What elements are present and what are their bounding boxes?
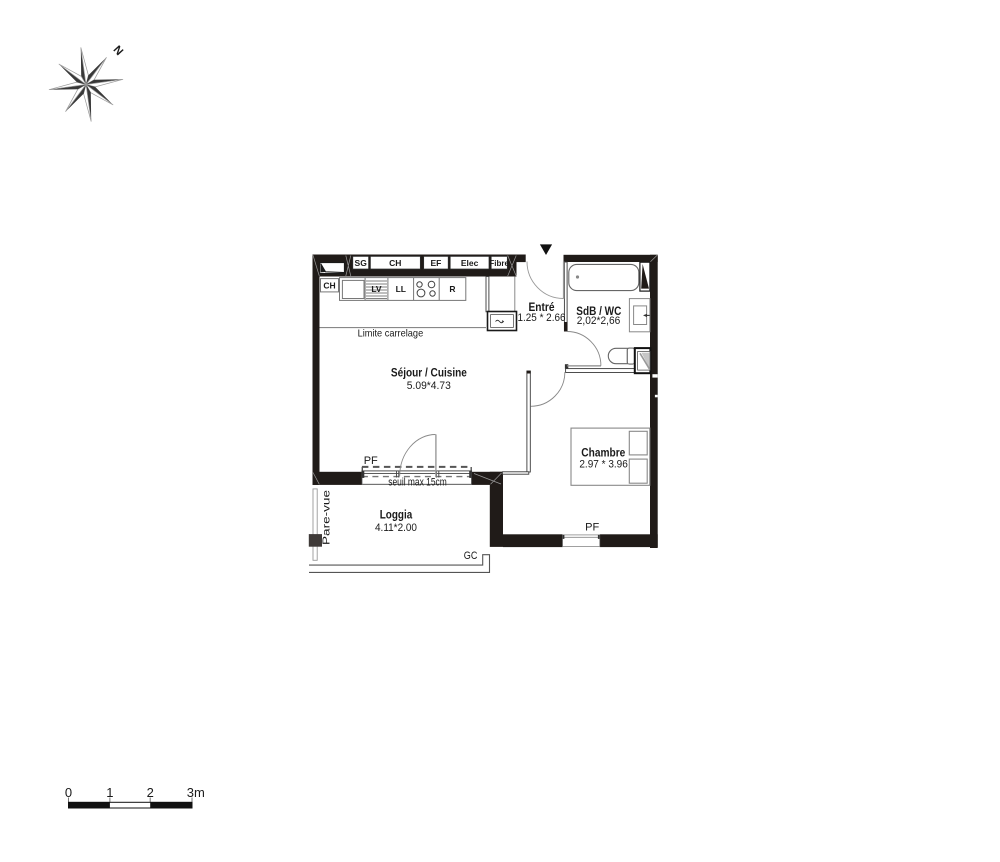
svg-text:Pare-vue: Pare-vue bbox=[321, 489, 332, 545]
svg-text:CH: CH bbox=[323, 280, 335, 290]
svg-text:GC: GC bbox=[464, 550, 478, 562]
svg-text:1.25 * 2.66: 1.25 * 2.66 bbox=[518, 312, 566, 324]
svg-text:5.09*4.73: 5.09*4.73 bbox=[407, 380, 451, 392]
svg-text:2,02*2,66: 2,02*2,66 bbox=[577, 315, 621, 327]
svg-text:0: 0 bbox=[65, 785, 72, 800]
svg-text:Fibre: Fibre bbox=[489, 259, 509, 268]
svg-text:CH: CH bbox=[389, 258, 401, 268]
svg-text:Loggia: Loggia bbox=[380, 510, 413, 522]
svg-text:4.11*2.00: 4.11*2.00 bbox=[375, 522, 417, 534]
svg-text:Limite carrelage: Limite carrelage bbox=[358, 328, 424, 340]
svg-text:2.97 * 3.96: 2.97 * 3.96 bbox=[579, 458, 628, 470]
svg-text:LV: LV bbox=[371, 284, 382, 294]
svg-text:3m: 3m bbox=[187, 785, 205, 800]
svg-text:EF: EF bbox=[430, 258, 441, 268]
svg-text:R: R bbox=[449, 284, 455, 294]
svg-text:PF: PF bbox=[364, 455, 378, 467]
svg-text:PF: PF bbox=[585, 522, 599, 534]
svg-text:SG: SG bbox=[355, 258, 368, 268]
svg-text:Séjour / Cuisine: Séjour / Cuisine bbox=[391, 368, 467, 380]
svg-text:2: 2 bbox=[147, 785, 154, 800]
svg-text:seuil max 15cm: seuil max 15cm bbox=[388, 476, 447, 488]
svg-text:Elec: Elec bbox=[461, 258, 479, 268]
svg-text:LL: LL bbox=[396, 284, 406, 294]
svg-text:1: 1 bbox=[106, 785, 113, 800]
